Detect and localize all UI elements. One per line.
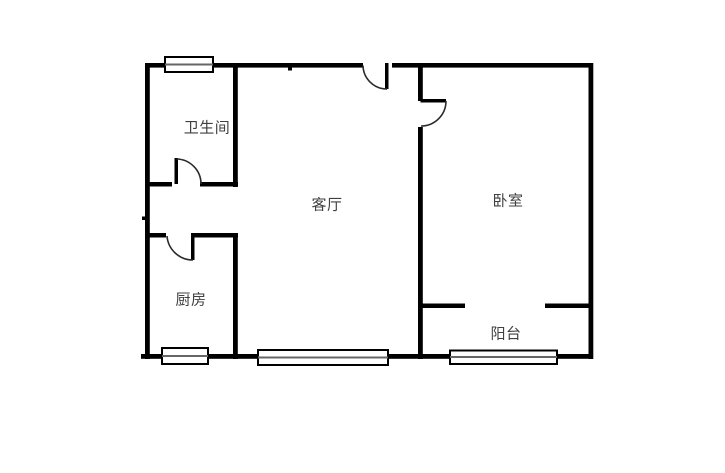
kitchen-door-arc	[167, 236, 193, 260]
wall-kitchen-top-left	[145, 233, 166, 238]
bathroom-door-arc	[177, 159, 202, 184]
wall-joint-tick-top	[288, 67, 292, 71]
wall-left	[145, 63, 150, 359]
entrance-door-panel	[385, 63, 389, 89]
entrance-door-arc	[363, 66, 387, 90]
wall-bathroom-bottom-right	[200, 182, 238, 187]
door-swing-arcs	[167, 66, 446, 261]
door-panels	[175, 63, 447, 260]
wall-kitchen-top-right	[191, 233, 238, 238]
walls	[141, 63, 593, 359]
floorplan: 卫生间 客厅 卧室 厨房 阳台	[0, 0, 725, 473]
bathroom-door-panel	[175, 158, 179, 184]
bedroom-door-panel	[421, 99, 447, 103]
room-label-balcony: 阳台	[490, 327, 521, 342]
room-label-living-room: 客厅	[311, 198, 342, 213]
wall-bathroom-bottom-left	[145, 182, 172, 187]
window-midlines	[162, 65, 557, 358]
wall-divider-top	[418, 63, 423, 101]
wall-joint-tick-left	[142, 217, 146, 221]
wall-divider-bottom	[418, 127, 423, 359]
room-label-kitchen: 厨房	[175, 293, 206, 308]
room-label-bathroom: 卫生间	[184, 121, 231, 136]
windows	[162, 57, 557, 365]
wall-right	[589, 63, 594, 359]
wall-balcony-left	[420, 304, 465, 309]
wall-bathroom-right	[233, 63, 238, 187]
kitchen-door-panel	[191, 235, 195, 260]
bedroom-door-arc	[421, 101, 446, 126]
room-label-bedroom: 卧室	[492, 194, 523, 209]
floorplan-drawing	[0, 0, 725, 473]
wall-kitchen-right	[233, 233, 238, 359]
wall-balcony-right	[545, 304, 591, 309]
